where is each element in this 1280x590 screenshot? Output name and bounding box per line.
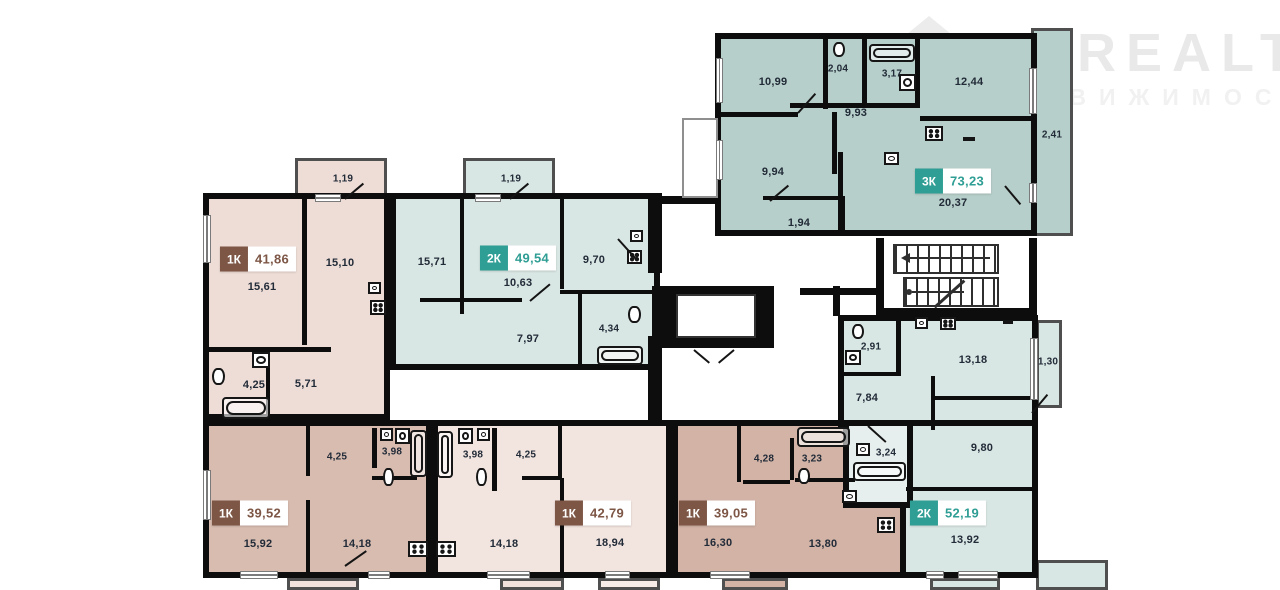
room-area-label: 4,25: [243, 379, 265, 391]
window: [203, 215, 211, 263]
room-area-label: 1,19: [501, 174, 521, 185]
wall: [560, 199, 564, 289]
room-area-label: 9,80: [971, 442, 993, 454]
room-area-label: 2,04: [828, 64, 848, 75]
washing-machine-icon: [252, 352, 270, 368]
stairs-arrow-head: [896, 253, 910, 263]
room-area-label: 2,41: [1042, 130, 1062, 141]
wall: [302, 199, 307, 345]
apartment-type: 2К: [480, 246, 508, 271]
wall: [648, 193, 662, 273]
room-area-label: 3,98: [382, 447, 402, 458]
apartment-area: 52,19: [938, 501, 986, 526]
toilet-icon: [476, 468, 487, 486]
wall: [721, 112, 798, 117]
sink-icon: [842, 490, 857, 503]
wall: [920, 116, 1037, 121]
window: [716, 140, 723, 180]
room-area-label: 7,97: [517, 333, 539, 345]
wall: [578, 294, 582, 370]
apartment-area: 41,86: [248, 247, 296, 272]
room-area-label: 4,25: [516, 450, 536, 461]
stairs-arrow: [908, 257, 990, 259]
elevator-car: [676, 294, 756, 338]
bathtub-icon: [797, 427, 850, 447]
stove-icon: [940, 317, 956, 330]
window: [710, 571, 750, 579]
balcony: [930, 578, 1000, 590]
room-area-label: 15,10: [326, 257, 355, 269]
wall: [492, 428, 497, 491]
wall: [1029, 238, 1037, 315]
apartment-3k-73: [715, 33, 1037, 236]
room-area-label: 14,18: [490, 538, 519, 550]
sink-icon: [380, 428, 393, 441]
room-area-label: 15,71: [418, 256, 447, 268]
wall: [558, 426, 562, 478]
washing-machine-icon: [395, 428, 410, 444]
room-area-label: 10,99: [759, 76, 788, 88]
wall: [935, 396, 1035, 400]
stove-icon: [436, 541, 456, 557]
apartment-type: 1К: [212, 501, 240, 526]
room-area-label: 16,30: [704, 537, 733, 549]
wall: [800, 288, 880, 295]
room-area-label: 18,94: [596, 537, 625, 549]
window: [926, 571, 944, 579]
stove-icon: [925, 126, 943, 141]
apartment-2k-52: [900, 420, 1038, 578]
apartment-badge: 1К 39,05: [679, 501, 755, 526]
room-area-label: 15,92: [244, 538, 273, 550]
window: [368, 571, 390, 579]
room-area-label: 20,37: [939, 197, 968, 209]
room-area-label: 10,63: [504, 277, 533, 289]
wall: [306, 426, 310, 476]
room-area-label: 3,17: [882, 69, 902, 80]
sink-icon: [630, 230, 643, 242]
elevator-door-swing: [718, 349, 735, 363]
room-area-label: 1,19: [333, 174, 353, 185]
apartment-area: 73,23: [943, 169, 991, 194]
apartment-badge: 2К 52,19: [910, 501, 986, 526]
room-area-label: 1,94: [788, 217, 810, 229]
bathtub-icon: [869, 44, 915, 62]
room-area-label: 4,34: [599, 324, 619, 335]
wall: [648, 336, 662, 426]
window: [1030, 338, 1038, 400]
window: [487, 571, 530, 579]
toilet-icon: [383, 468, 394, 486]
toilet-icon: [852, 324, 864, 339]
wall: [862, 39, 867, 105]
apartment-area: 39,52: [240, 501, 288, 526]
wall: [790, 438, 794, 480]
wall: [906, 487, 1036, 491]
room-area-label: 7,84: [856, 392, 878, 404]
toilet-icon: [798, 468, 810, 484]
shaft-duct: [682, 118, 718, 198]
apartment-type: 1К: [679, 501, 707, 526]
washing-machine-icon: [845, 350, 861, 365]
apartment-type: 3К: [915, 169, 943, 194]
wall: [209, 347, 331, 352]
stairs-line: [912, 291, 964, 293]
balcony: [722, 578, 788, 590]
washing-machine-icon: [458, 428, 473, 444]
room-area-label: 13,92: [951, 534, 980, 546]
stove-icon: [408, 541, 428, 557]
apartment-badge: 1К 41,86: [220, 247, 296, 272]
balcony: [1036, 560, 1108, 590]
room-area-label: 4,28: [754, 454, 774, 465]
bathtub-icon: [853, 462, 906, 481]
balcony: [500, 578, 564, 590]
wall: [737, 426, 741, 482]
apartment-type: 1К: [220, 247, 248, 272]
apartment-badge: 3К 73,23: [915, 169, 991, 194]
room-area-label: 15,61: [248, 281, 277, 293]
bathtub-icon: [222, 397, 270, 419]
room-area-label: 5,71: [295, 378, 317, 390]
stove-icon: [370, 300, 386, 315]
wall: [460, 199, 464, 314]
room-area-label: 3,24: [876, 448, 896, 459]
wall: [833, 286, 840, 316]
bathtub-icon: [437, 431, 453, 478]
room-area-label: 9,93: [845, 107, 867, 119]
apartment-type: 2К: [910, 501, 938, 526]
wall: [420, 298, 522, 302]
bathtub-icon: [597, 346, 643, 365]
balcony: [287, 578, 359, 590]
window: [1029, 68, 1037, 114]
window: [605, 571, 630, 579]
sink-icon: [856, 443, 870, 456]
window: [203, 470, 211, 520]
apartment-area: 49,54: [508, 246, 556, 271]
apartment-area: 39,05: [707, 501, 755, 526]
room-area-label: 3,98: [463, 450, 483, 461]
wall: [876, 238, 884, 315]
room-area-label: 9,94: [762, 166, 784, 178]
room-area-label: 9,70: [583, 254, 605, 266]
vent-icon: [963, 137, 975, 141]
room-area-label: 3,23: [802, 454, 822, 465]
window: [475, 194, 501, 202]
wall: [560, 290, 656, 294]
balcony: [598, 578, 660, 590]
wall: [306, 500, 310, 572]
sink-icon: [368, 282, 381, 294]
wall: [896, 321, 901, 376]
sink-icon: [915, 317, 928, 329]
floor-plan-canvas: ONREALT НЕДВИЖИМОСТЬ: [0, 0, 1280, 590]
wall: [931, 376, 935, 430]
window: [315, 194, 341, 202]
apartment-badge: 2К 49,54: [480, 246, 556, 271]
sink-icon: [884, 152, 899, 165]
wall: [915, 39, 920, 105]
room-area-label: 4,25: [327, 452, 347, 463]
window: [958, 571, 998, 579]
room-area-label: 12,44: [955, 76, 984, 88]
wall: [743, 480, 790, 484]
room-area-label: 14,18: [343, 538, 372, 550]
stove-icon: [877, 517, 895, 533]
window: [240, 571, 278, 579]
toilet-icon: [628, 306, 641, 323]
room-area-label: 2,91: [861, 342, 881, 353]
apartment-area: 42,79: [583, 501, 631, 526]
wall: [841, 196, 845, 232]
wall: [844, 372, 901, 376]
wall: [522, 476, 562, 480]
toilet-icon: [212, 368, 225, 385]
vent-icon: [1003, 320, 1013, 324]
apartment-badge: 1К 42,79: [555, 501, 631, 526]
wall: [372, 476, 417, 480]
apartment-badge: 1К 39,52: [212, 501, 288, 526]
wall: [884, 308, 1037, 315]
wall: [372, 428, 377, 468]
apartment-type: 1К: [555, 501, 583, 526]
toilet-icon: [833, 42, 845, 57]
elevator-door-swing: [693, 349, 710, 363]
room-area-label: 13,80: [809, 538, 838, 550]
apartment-2k-52: [838, 315, 1038, 427]
room-area-label: 1,30: [1038, 357, 1058, 368]
window: [716, 58, 723, 103]
window: [1029, 183, 1037, 203]
room-area-label: 13,18: [959, 354, 988, 366]
wall: [832, 112, 837, 174]
bathtub-icon: [410, 430, 427, 477]
sink-icon: [477, 428, 490, 441]
